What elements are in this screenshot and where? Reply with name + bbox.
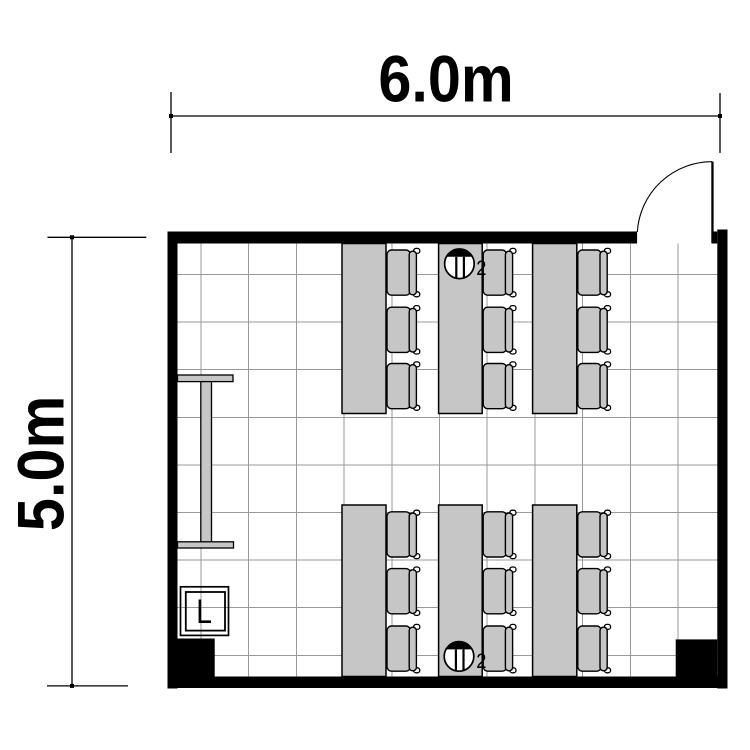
svg-text:L: L xyxy=(196,591,212,630)
svg-text:2: 2 xyxy=(476,650,486,674)
svg-text:2: 2 xyxy=(476,257,486,281)
svg-text:5.0m: 5.0m xyxy=(5,396,79,531)
svg-text:6.0m: 6.0m xyxy=(378,43,513,117)
